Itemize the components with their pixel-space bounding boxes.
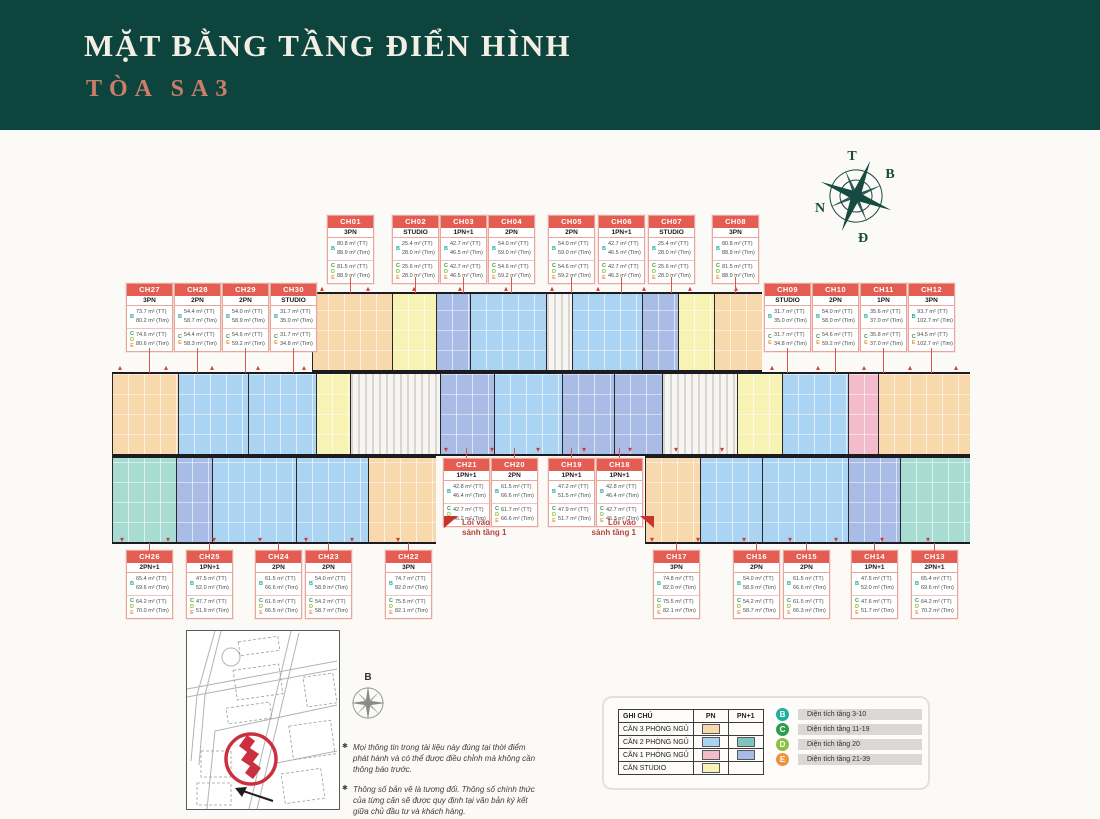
floor-letters: CDE <box>913 598 921 617</box>
floor-letters: B <box>735 581 743 587</box>
balcony-marker: ▾ <box>166 536 170 544</box>
card-leader-line <box>149 348 150 373</box>
area-tim: 46.5 m² (Tim) <box>450 249 485 258</box>
area-tt: 54.6 m² (TT) <box>232 331 267 340</box>
balcony-marker: ▾ <box>490 446 494 454</box>
area-tim: 66.6 m² (Tim) <box>793 584 828 593</box>
floor-letter: B <box>912 314 916 320</box>
floor-letter: E <box>768 340 772 346</box>
area-tt: 54.0 m² (TT) <box>743 575 778 584</box>
color-swatch <box>702 763 720 773</box>
unit-id: CH14 <box>852 551 897 563</box>
area-values: 42.7 m² (TT)46.3 m² (Tim) <box>608 263 643 280</box>
area-row: CDE47.6 m² (TT)51.7 m² (Tim) <box>852 595 897 618</box>
unit-card: CH173PNB74.8 m² (TT)82.0 m² (Tim)CDE75.5… <box>653 550 700 619</box>
balcony-marker: ▴ <box>770 364 774 372</box>
floor-letters: B <box>493 489 501 495</box>
unit-id: CH19 <box>549 459 594 471</box>
area-values: 61.5 m² (TT)66.3 m² (Tim) <box>793 598 828 615</box>
balcony-marker: ▾ <box>696 536 700 544</box>
floor-letter: B <box>389 581 393 587</box>
floor-letter: E <box>816 340 820 346</box>
balcony-marker: ▴ <box>164 364 168 372</box>
area-row: B47.2 m² (TT)51.5 m² (Tim) <box>549 481 594 503</box>
floor-range-label: Diện tích tầng 3-10 <box>798 709 922 720</box>
area-tim: 58.7 m² (Tim) <box>184 317 219 326</box>
area-tim: 82.0 m² (Tim) <box>663 584 698 593</box>
unit-type: 3PN <box>328 228 373 238</box>
card-leader-line <box>350 277 351 293</box>
area-row: B80.8 m² (TT)88.9 m² (Tim) <box>713 238 758 260</box>
area-tt: 74.6 m² (TT) <box>136 331 171 340</box>
area-values: 93.7 m² (TT)102.7 m² (Tim) <box>917 308 953 325</box>
floor-letter: B <box>396 246 400 252</box>
area-values: 61.5 m² (TT)66.5 m² (Tim) <box>265 598 300 615</box>
area-tim: 66.6 m² (Tim) <box>265 584 300 593</box>
floor-letter: B <box>652 246 656 252</box>
area-row: CDE64.2 m² (TT)70.2 m² (Tim) <box>912 595 957 618</box>
floor-letter: E <box>716 275 720 281</box>
unit-id: CH11 <box>861 284 906 296</box>
floor-letters: CDE <box>329 263 337 282</box>
plan-unit-block <box>368 458 436 542</box>
area-values: 54.6 m² (TT)59.2 m² (Tim) <box>558 263 593 280</box>
floor-letter: B <box>864 314 868 320</box>
area-tt: 42.7 m² (TT) <box>606 506 641 515</box>
area-tim: 51.5 m² (Tim) <box>558 492 593 501</box>
plan-unit-block <box>900 458 970 542</box>
balcony-marker: ▴ <box>688 285 692 293</box>
card-leader-line <box>883 348 884 373</box>
entrance-label: Lối vào sảnh tầng 1 <box>580 518 636 539</box>
floor-letters: CDE <box>442 263 450 282</box>
floor-letter: E <box>130 343 134 349</box>
floor-letters: B <box>785 581 793 587</box>
color-swatch <box>702 750 720 760</box>
area-row: B65.4 m² (TT)69.6 m² (Tim) <box>127 573 172 595</box>
unit-id: CH23 <box>306 551 351 563</box>
unit-card: CH132PN+1B65.4 m² (TT)69.6 m² (Tim)CDE64… <box>911 550 958 619</box>
area-tim: 82.1 m² (Tim) <box>395 607 430 616</box>
floor-letters: CE <box>272 334 280 347</box>
floor-letters: B <box>329 246 337 252</box>
area-row: B47.5 m² (TT)52.0 m² (Tim) <box>852 573 897 595</box>
unit-id: CH03 <box>441 216 486 228</box>
note-item: ✱Thông số bản vẽ là tương đối. Thông số … <box>342 784 542 818</box>
floor-letters: CE <box>176 334 184 347</box>
unit-card: CH282PNB54.4 m² (TT)58.7 m² (Tim)CE54.4 … <box>174 283 221 352</box>
floor-letter: E <box>309 610 313 616</box>
area-row: CDE47.7 m² (TT)51.9 m² (Tim) <box>187 595 232 618</box>
floor-letter: B <box>190 581 194 587</box>
floor-letters: B <box>176 314 184 320</box>
unit-type: 3PN <box>386 563 431 573</box>
area-values: 25.4 m² (TT)28.0 m² (Tim) <box>402 240 437 257</box>
area-row: B54.4 m² (TT)58.7 m² (Tim) <box>175 306 220 328</box>
plan-unit-block <box>762 458 848 542</box>
floor-letters: CDE <box>600 263 608 282</box>
card-leader-line <box>735 277 736 293</box>
floor-letters: CDE <box>188 598 196 617</box>
floor-letters: CDE <box>714 263 722 282</box>
balcony-marker: ▾ <box>834 536 838 544</box>
floor-letter: B <box>716 246 720 252</box>
floor-letter: B <box>816 314 820 320</box>
area-tt: 42.7 m² (TT) <box>450 240 485 249</box>
balcony-marker: ▴ <box>302 364 306 372</box>
area-row: B80.8 m² (TT)88.9 m² (Tim) <box>328 238 373 260</box>
area-tt: 54.2 m² (TT) <box>315 598 350 607</box>
plan-core <box>350 374 440 454</box>
compass-icon: T B N Đ <box>808 146 904 246</box>
unit-id: CH10 <box>813 284 858 296</box>
balcony-marker: ▾ <box>396 536 400 544</box>
area-tim: 102.7 m² (Tim) <box>917 340 953 349</box>
balcony-marker: ▾ <box>120 536 124 544</box>
legend-swatch-cell <box>728 736 763 749</box>
area-tim: 34.8 m² (Tim) <box>774 340 809 349</box>
unit-card: CH262PN+1B65.4 m² (TT)69.6 m² (Tim)CDE64… <box>126 550 173 619</box>
floor-letter: B <box>447 489 451 495</box>
floor-letter-badge: E <box>776 753 789 766</box>
area-tt: 31.7 m² (TT) <box>774 331 809 340</box>
balcony-marker: ▴ <box>954 364 958 372</box>
floor-letter: E <box>389 610 393 616</box>
floor-letter: E <box>190 610 194 616</box>
legend-swatch-cell <box>693 749 728 762</box>
area-tim: 88.9 m² (Tim) <box>337 272 372 281</box>
floor-range-label: Diện tích tầng 21-39 <box>798 754 922 765</box>
balcony-marker: ▴ <box>256 364 260 372</box>
area-values: 25.6 m² (TT)28.0 m² (Tim) <box>402 263 437 280</box>
floor-letter: B <box>495 489 499 495</box>
area-tt: 75.5 m² (TT) <box>663 598 698 607</box>
legend-unit-type-label: CĂN STUDIO <box>619 762 694 775</box>
balcony-marker: ▾ <box>880 536 884 544</box>
area-tim: 46.3 m² (Tim) <box>608 272 643 281</box>
card-leader-line <box>874 543 875 551</box>
plan-unit-block <box>248 374 316 454</box>
legend-unit-type-label: CĂN 1 PHÒNG NGỦ <box>619 749 694 762</box>
area-values: 54.4 m² (TT)58.7 m² (Tim) <box>184 308 219 325</box>
notes: ✱Mọi thông tin trong tài liệu này đúng t… <box>342 742 542 819</box>
area-row: B54.0 m² (TT)58.9 m² (Tim) <box>223 306 268 328</box>
area-tt: 25.6 m² (TT) <box>402 263 437 272</box>
area-values: 42.7 m² (TT)46.5 m² (Tim) <box>450 240 485 257</box>
plan-unit-block <box>737 374 782 454</box>
area-tim: 34.8 m² (Tim) <box>280 340 315 349</box>
area-tim: 66.3 m² (Tim) <box>793 607 828 616</box>
unit-card: CH042PNB54.0 m² (TT)59.0 m² (Tim)CDE54.6… <box>488 215 535 284</box>
area-row: B42.7 m² (TT)46.5 m² (Tim) <box>599 238 644 260</box>
area-values: 31.7 m² (TT)34.8 m² (Tim) <box>280 331 315 348</box>
unit-id: CH16 <box>734 551 779 563</box>
floor-letter: E <box>912 340 916 346</box>
area-tim: 69.6 m² (Tim) <box>921 584 956 593</box>
area-values: 31.7 m² (TT)35.0 m² (Tim) <box>280 308 315 325</box>
floor-letter-badge: B <box>776 708 789 721</box>
plan-core <box>662 374 737 454</box>
floor-letter: B <box>787 581 791 587</box>
area-values: 42.7 m² (TT)46.5 m² (Tim) <box>608 240 643 257</box>
area-tt: 61.5 m² (TT) <box>265 598 300 607</box>
unit-card: CH09STUDIOB31.7 m² (TT)35.0 m² (Tim)CE31… <box>764 283 811 352</box>
floor-letter: B <box>259 581 263 587</box>
area-tim: 59.2 m² (Tim) <box>822 340 857 349</box>
card-leader-line <box>209 543 210 551</box>
area-tt: 42.8 m² (TT) <box>606 483 641 492</box>
floor-letters: CE <box>862 334 870 347</box>
area-tt: 54.0 m² (TT) <box>822 308 857 317</box>
area-values: 31.7 m² (TT)34.8 m² (Tim) <box>774 331 809 348</box>
area-tim: 51.7 m² (Tim) <box>861 607 896 616</box>
plan-band <box>645 456 970 544</box>
card-leader-line <box>621 277 622 293</box>
area-tim: 58.3 m² (Tim) <box>184 340 219 349</box>
area-tim: 69.6 m² (Tim) <box>136 584 171 593</box>
unit-type: 1PN+1 <box>549 471 594 481</box>
area-values: 54.2 m² (TT)58.7 m² (Tim) <box>743 598 778 615</box>
color-swatch <box>702 724 720 734</box>
balcony-marker: ▴ <box>320 285 324 293</box>
floor-letter: E <box>552 518 556 524</box>
unit-id: CH15 <box>784 551 829 563</box>
site-map <box>186 630 340 810</box>
unit-id: CH18 <box>597 459 642 471</box>
area-values: 47.6 m² (TT)51.7 m² (Tim) <box>861 598 896 615</box>
area-tim: 70.0 m² (Tim) <box>136 607 171 616</box>
area-tt: 73.7 m² (TT) <box>136 308 171 317</box>
area-values: 74.8 m² (TT)82.0 m² (Tim) <box>663 575 698 592</box>
plan-unit-block <box>678 294 714 370</box>
unit-type: 2PN <box>489 228 534 238</box>
floor-letter: E <box>259 610 263 616</box>
area-tim: 51.9 m² (Tim) <box>196 607 231 616</box>
area-tim: 58.0 m² (Tim) <box>822 317 857 326</box>
floor-letter: E <box>737 610 741 616</box>
area-tt: 61.5 m² (TT) <box>793 598 828 607</box>
area-tim: 88.9 m² (Tim) <box>337 249 372 258</box>
compass-west-label: T <box>847 149 857 164</box>
area-values: 54.6 m² (TT)59.2 m² (Tim) <box>232 331 267 348</box>
unit-id: CH07 <box>649 216 694 228</box>
unit-card: CH232PNB54.0 m² (TT)58.9 m² (Tim)CDE54.2… <box>305 550 352 619</box>
plan-band <box>312 292 762 372</box>
area-tim: 59.0 m² (Tim) <box>558 249 593 258</box>
floor-letters: CDE <box>550 506 558 525</box>
area-values: 42.8 m² (TT)46.4 m² (Tim) <box>606 483 641 500</box>
color-swatch <box>737 750 755 760</box>
plan-unit-block <box>878 374 970 454</box>
area-tt: 74.7 m² (TT) <box>395 575 430 584</box>
floor-letter: B <box>130 581 134 587</box>
floor-letter: B <box>768 314 772 320</box>
unit-id: CH28 <box>175 284 220 296</box>
unit-id: CH22 <box>386 551 431 563</box>
floor-letters: CDE <box>307 598 315 617</box>
mini-compass-icon <box>348 683 388 723</box>
unit-card: CH30STUDIOB31.7 m² (TT)35.0 m² (Tim)CE31… <box>270 283 317 352</box>
card-leader-line <box>931 348 932 373</box>
balcony-marker: ▾ <box>258 536 262 544</box>
area-values: 47.7 m² (TT)51.9 m² (Tim) <box>196 598 231 615</box>
area-tim: 59.2 m² (Tim) <box>232 340 267 349</box>
unit-id: CH08 <box>713 216 758 228</box>
balcony-marker: ▴ <box>908 364 912 372</box>
balcony-marker: ▾ <box>304 536 308 544</box>
area-tim: 59.2 m² (Tim) <box>558 272 593 281</box>
unit-type: 3PN <box>127 296 172 306</box>
unit-card: CH223PNB74.7 m² (TT)82.0 m² (Tim)CDE75.5… <box>385 550 432 619</box>
floor-letters: B <box>394 246 402 252</box>
unit-card: CH202PNB61.5 m² (TT)66.6 m² (Tim)CDE61.7… <box>491 458 538 527</box>
area-tt: 64.2 m² (TT) <box>921 598 956 607</box>
area-tim: 52.0 m² (Tim) <box>196 584 231 593</box>
plan-band <box>112 372 970 456</box>
floor-letter: E <box>226 340 230 346</box>
card-leader-line <box>835 348 836 373</box>
unit-card: CH292PNB54.0 m² (TT)58.9 m² (Tim)CE54.6 … <box>222 283 269 352</box>
area-tt: 61.5 m² (TT) <box>501 483 536 492</box>
area-tt: 81.5 m² (TT) <box>722 263 757 272</box>
card-leader-line <box>671 277 672 293</box>
plan-unit-block <box>645 458 700 542</box>
plan-unit-block <box>848 458 900 542</box>
floor-letter: B <box>178 314 182 320</box>
area-tt: 74.8 m² (TT) <box>663 575 698 584</box>
unit-card: CH162PNB54.0 m² (TT)58.9 m² (Tim)CDE54.2… <box>733 550 780 619</box>
plan-unit-block <box>212 458 296 542</box>
floor-letters: B <box>188 581 196 587</box>
area-row: CDE54.2 m² (TT)58.7 m² (Tim) <box>306 595 351 618</box>
area-values: 65.4 m² (TT)69.6 m² (Tim) <box>921 575 956 592</box>
area-tt: 61.5 m² (TT) <box>265 575 300 584</box>
floor-letters: CDE <box>387 598 395 617</box>
floor-range-label: Diện tích tầng 20 <box>798 739 922 750</box>
area-tim: 58.7 m² (Tim) <box>743 607 778 616</box>
unit-type: 3PN <box>654 563 699 573</box>
area-values: 54.0 m² (TT)58.9 m² (Tim) <box>743 575 778 592</box>
unit-type: 2PN+1 <box>127 563 172 573</box>
area-tt: 25.4 m² (TT) <box>658 240 693 249</box>
area-values: 81.5 m² (TT)88.9 m² (Tim) <box>337 263 372 280</box>
unit-card: CH191PN+1B47.2 m² (TT)51.5 m² (Tim)CDE47… <box>548 458 595 527</box>
card-leader-line <box>511 277 512 293</box>
unit-type: STUDIO <box>271 296 316 306</box>
area-tt: 42.7 m² (TT) <box>453 506 488 515</box>
unit-id: CH02 <box>393 216 438 228</box>
card-leader-line <box>328 543 329 551</box>
plan-unit-block <box>572 294 642 370</box>
plan-unit-block <box>176 458 212 542</box>
area-tt: 54.0 m² (TT) <box>498 240 533 249</box>
plan-unit-block <box>848 374 878 454</box>
unit-id: CH29 <box>223 284 268 296</box>
area-tt: 35.8 m² (TT) <box>870 331 905 340</box>
plan-unit-block <box>112 458 176 542</box>
floor-letters: CDE <box>490 263 498 282</box>
area-row: CDE61.5 m² (TT)66.5 m² (Tim) <box>256 595 301 618</box>
unit-type: 1PN+1 <box>187 563 232 573</box>
area-row: CDE75.5 m² (TT)82.1 m² (Tim) <box>386 595 431 618</box>
floor-letters: B <box>598 489 606 495</box>
card-leader-line <box>245 348 246 373</box>
compass-north-label: B <box>885 167 894 182</box>
area-row: B74.7 m² (TT)82.0 m² (Tim) <box>386 573 431 595</box>
floor-letter: E <box>855 610 859 616</box>
floor-letters: B <box>272 314 280 320</box>
area-row: B42.8 m² (TT)46.4 m² (Tim) <box>597 481 642 503</box>
card-leader-line <box>293 348 294 373</box>
floor-letters: B <box>766 314 774 320</box>
area-row: CDE64.2 m² (TT)70.0 m² (Tim) <box>127 595 172 618</box>
plan-unit-block <box>562 374 614 454</box>
note-item: ✱Mọi thông tin trong tài liệu này đúng t… <box>342 742 542 776</box>
area-values: 64.2 m² (TT)70.2 m² (Tim) <box>921 598 956 615</box>
area-values: 47.5 m² (TT)52.0 m² (Tim) <box>861 575 896 592</box>
floor-letters: B <box>814 314 822 320</box>
floor-letter: B <box>737 581 741 587</box>
balcony-marker: ▾ <box>212 536 216 544</box>
unit-type: 1PN+1 <box>599 228 644 238</box>
area-tim: 66.5 m² (Tim) <box>265 607 300 616</box>
area-values: 75.5 m² (TT)82.1 m² (Tim) <box>663 598 698 615</box>
floor-letters: B <box>490 246 498 252</box>
floor-letter: B <box>915 581 919 587</box>
unit-id: CH30 <box>271 284 316 296</box>
unit-type: 2PN <box>256 563 301 573</box>
area-tt: 47.2 m² (TT) <box>558 483 593 492</box>
floor-letters: CE <box>766 334 774 347</box>
area-row: B54.0 m² (TT)58.9 m² (Tim) <box>734 573 779 595</box>
area-tim: 80.6 m² (Tim) <box>136 340 171 349</box>
unit-card: CH123PNB93.7 m² (TT)102.7 m² (Tim)CE94.5… <box>908 283 955 352</box>
legend-col-pn1: PN+1 <box>728 710 763 723</box>
card-leader-line <box>463 277 464 293</box>
floor-letter: E <box>915 610 919 616</box>
balcony-marker: ▴ <box>816 364 820 372</box>
area-tt: 31.7 m² (TT) <box>280 331 315 340</box>
unit-type: STUDIO <box>393 228 438 238</box>
floor-letters: CDE <box>785 598 793 617</box>
plan-unit-block <box>436 294 470 370</box>
area-values: 74.7 m² (TT)82.0 m² (Tim) <box>395 575 430 592</box>
unit-type: 1PN+1 <box>852 563 897 573</box>
area-tt: 54.0 m² (TT) <box>558 240 593 249</box>
floor-letters: CDE <box>650 263 658 282</box>
unit-id: CH26 <box>127 551 172 563</box>
area-tt: 61.5 m² (TT) <box>793 575 828 584</box>
area-tt: 54.4 m² (TT) <box>184 308 219 317</box>
unit-card: CH181PN+1B42.8 m² (TT)46.4 m² (Tim)CDE42… <box>596 458 643 527</box>
card-leader-line <box>415 277 416 293</box>
area-values: 54.0 m² (TT)58.9 m² (Tim) <box>315 575 350 592</box>
area-tt: 54.0 m² (TT) <box>232 308 267 317</box>
area-tt: 31.7 m² (TT) <box>280 308 315 317</box>
area-row: B65.4 m² (TT)69.6 m² (Tim) <box>912 573 957 595</box>
area-row: B35.6 m² (TT)37.0 m² (Tim) <box>861 306 906 328</box>
area-tt: 42.7 m² (TT) <box>450 263 485 272</box>
area-tim: 46.5 m² (Tim) <box>450 272 485 281</box>
area-tim: 82.1 m² (Tim) <box>663 607 698 616</box>
unit-type: STUDIO <box>765 296 810 306</box>
area-tt: 42.7 m² (TT) <box>608 240 643 249</box>
floor-letter: E <box>657 610 661 616</box>
unit-type: 2PN <box>492 471 537 481</box>
card-leader-line <box>408 543 409 551</box>
card-leader-line <box>934 543 935 551</box>
card-leader-line <box>278 543 279 551</box>
